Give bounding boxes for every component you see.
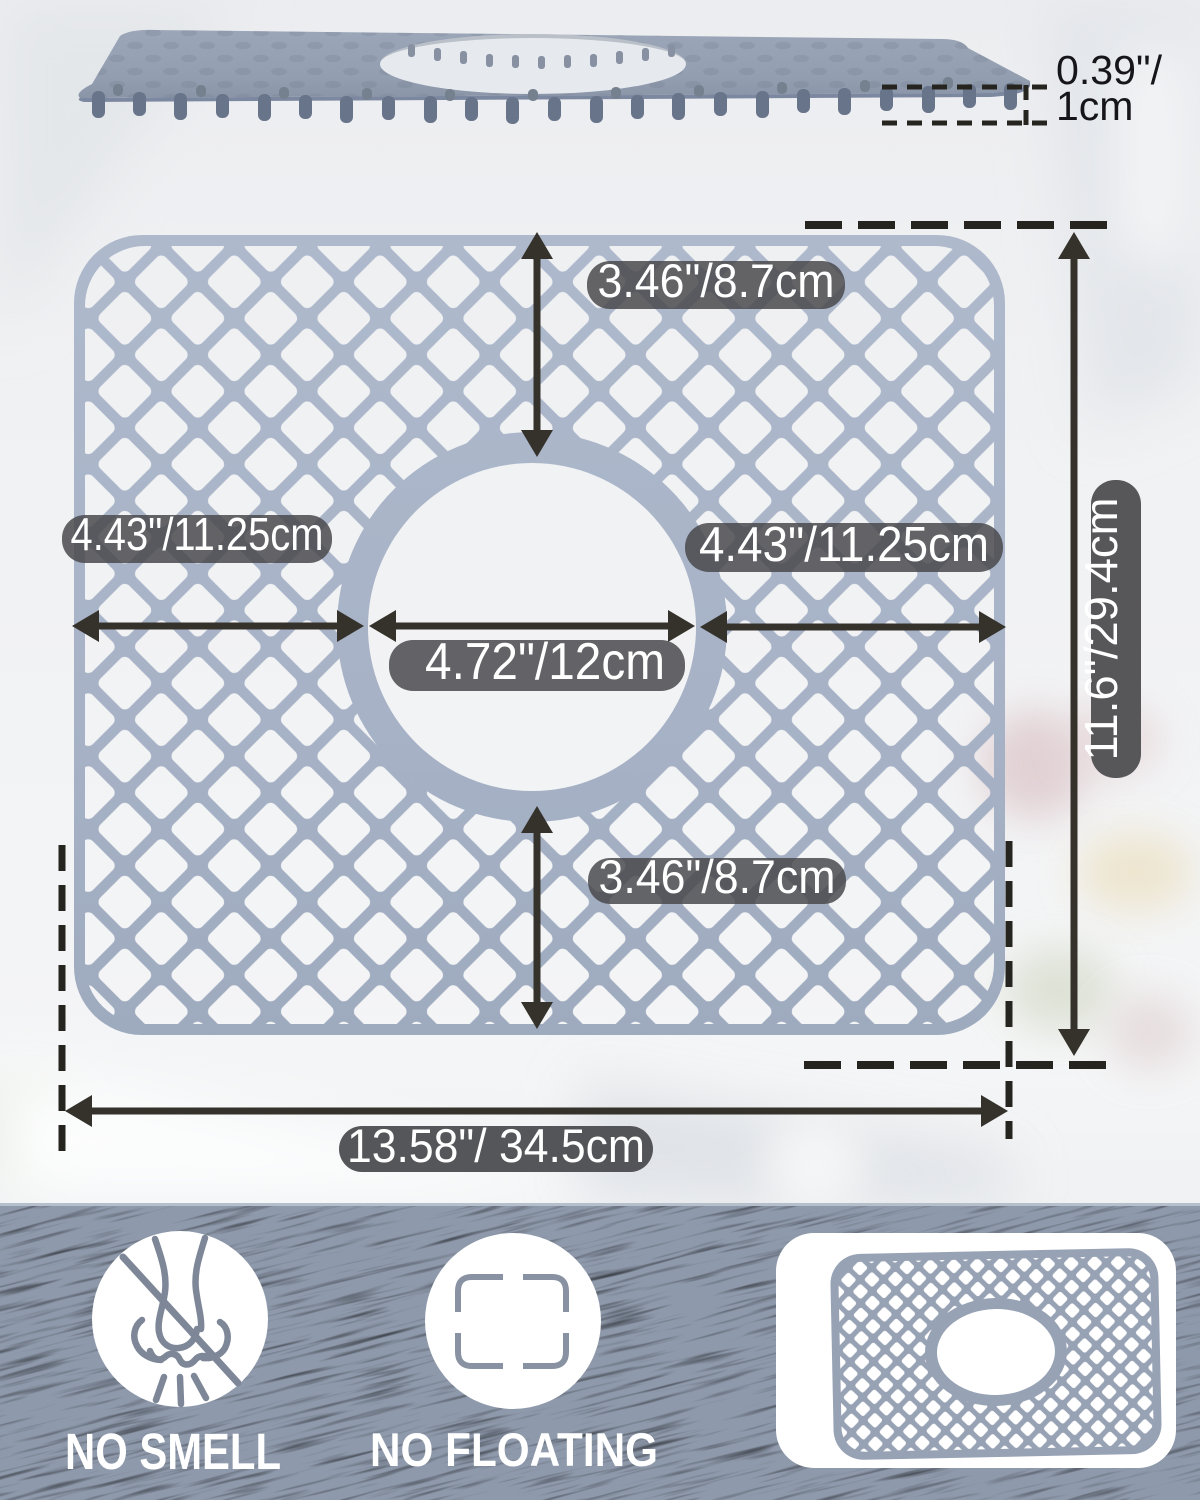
svg-text:4.72"/12cm: 4.72"/12cm <box>425 633 665 691</box>
svg-text:11.6"/29.4cm: 11.6"/29.4cm <box>1075 498 1127 761</box>
svg-text:1cm: 1cm <box>1056 83 1133 129</box>
svg-text:4.43"/11.25cm: 4.43"/11.25cm <box>699 518 989 572</box>
svg-text:3.46"/8.7cm: 3.46"/8.7cm <box>599 850 836 903</box>
svg-text:4.43"/11.25cm: 4.43"/11.25cm <box>71 508 324 560</box>
svg-text:NO FLOATING: NO FLOATING <box>370 1423 658 1476</box>
svg-text:13.58"/ 34.5cm: 13.58"/ 34.5cm <box>347 1119 645 1172</box>
svg-text:NO SMELL: NO SMELL <box>65 1423 281 1480</box>
svg-text:3.46"/8.7cm: 3.46"/8.7cm <box>598 254 835 307</box>
